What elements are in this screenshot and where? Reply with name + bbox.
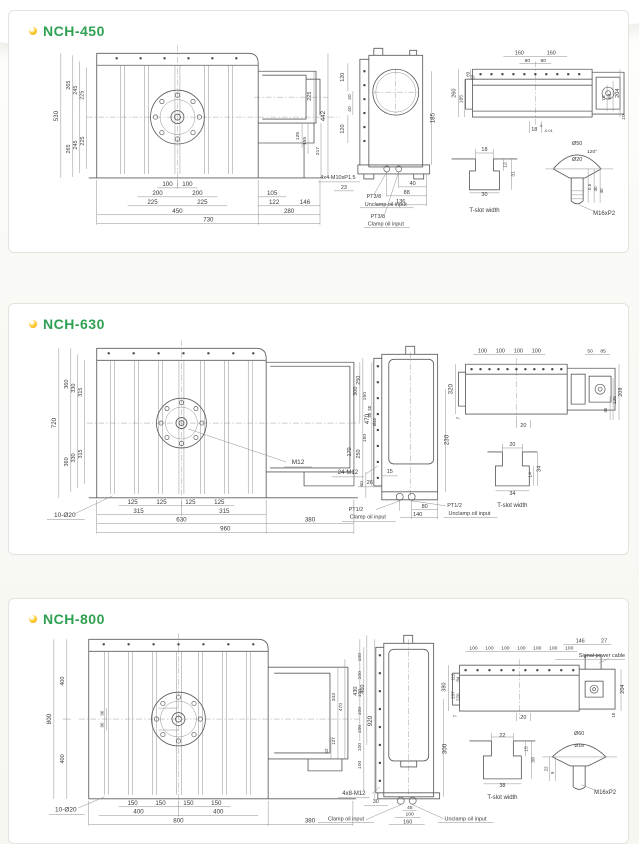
- dim-label: 57: [471, 74, 476, 79]
- dim-label: 380: [305, 517, 316, 524]
- dim-label: -0.01: [544, 128, 554, 133]
- dim-label: 320: [448, 383, 455, 394]
- dim-label: 800: [173, 818, 184, 825]
- dim-label: 400: [60, 677, 66, 686]
- dim-label: M16xP2: [593, 211, 616, 217]
- bullet-icon: [29, 320, 37, 328]
- dim-label: 442: [320, 110, 327, 121]
- technical-drawing-nch-800: 80040040090903434704304609201276210-Ø201…: [9, 629, 630, 843]
- dim-label: 80: [422, 504, 428, 510]
- dim-label: 100: [469, 645, 478, 651]
- dim-label: Clamp oil input: [328, 817, 365, 823]
- dim-label: 225: [80, 136, 86, 145]
- dim-label: 12: [502, 162, 508, 168]
- dim-label: 38: [530, 757, 536, 763]
- dim-label: 4x8-M12: [342, 791, 366, 797]
- dim-label: 265: [66, 144, 72, 153]
- dim-label: 204: [615, 89, 621, 98]
- dim-label: 100: [485, 645, 494, 651]
- dim-label: PT3/8: [367, 194, 382, 200]
- dim-label: 150: [362, 392, 368, 401]
- dim-label: 245: [73, 86, 79, 95]
- dim-label: 225: [307, 92, 313, 101]
- dim-label: T-slot width: [487, 795, 517, 801]
- dim-label: 0: [540, 123, 543, 128]
- dim-label: 45: [407, 805, 413, 811]
- dim-label: 9: [550, 771, 555, 774]
- dim-label: 100: [357, 671, 363, 680]
- dim-label: 100: [357, 707, 363, 716]
- dim-label: 30: [593, 186, 598, 191]
- dim-label: 10-Ø20: [54, 512, 76, 519]
- dim-label: 160: [547, 50, 556, 56]
- dim-label: 62: [324, 748, 329, 753]
- section-header: NCH-800: [29, 611, 105, 627]
- section-title: NCH-450: [43, 23, 105, 39]
- dim-label: 14: [527, 472, 533, 478]
- dim-label: 400: [133, 809, 144, 816]
- dim-label: 450: [172, 208, 183, 215]
- section-nch-800: NCH-800 80040040090903434704304609201276…: [8, 598, 629, 844]
- dim-label: 125: [214, 499, 225, 506]
- dim-label: 100: [496, 348, 505, 354]
- dim-label: 50: [367, 412, 372, 417]
- dim-label: 155: [302, 137, 308, 146]
- bullet-icon: [29, 27, 37, 35]
- dim-label: 18: [481, 147, 487, 153]
- dim-label: 245: [73, 140, 79, 149]
- dim-label: 360: [64, 457, 70, 466]
- section-header: NCH-450: [29, 23, 105, 39]
- dim-label: 100: [478, 348, 487, 354]
- dim-label: 730: [203, 217, 214, 224]
- dim-label: 100: [501, 645, 510, 651]
- dim-label: 185: [459, 95, 465, 104]
- dim-label: 38: [499, 783, 505, 789]
- dim-label: 217: [315, 147, 321, 156]
- dim-label: 10-Ø20: [55, 807, 77, 814]
- dim-label: 100: [533, 645, 542, 651]
- dim-label: 125: [127, 499, 138, 506]
- dim-label: Unclamp oil input: [449, 511, 491, 517]
- dim-label: 100: [517, 645, 526, 651]
- dim-label: 146: [576, 638, 585, 644]
- dim-label: 160: [403, 820, 412, 826]
- dim-label: 34: [509, 491, 515, 497]
- dim-label: Signal power cable: [579, 653, 625, 659]
- dim-label: 22: [543, 766, 548, 771]
- dim-label: 225: [80, 91, 86, 100]
- dim-label: 260: [452, 89, 458, 98]
- dim-label: 300: [353, 387, 359, 396]
- dim-label: 40: [599, 188, 604, 193]
- dim-label: T-slot width: [469, 208, 499, 214]
- dim-label: 100: [532, 348, 541, 354]
- dim-label: 230: [444, 434, 451, 445]
- dim-label: 60: [359, 481, 365, 487]
- dim-label: 100: [182, 181, 193, 188]
- dim-label: 360: [64, 380, 70, 389]
- dim-label: PT1/2: [349, 507, 364, 513]
- dim-label: 10: [621, 114, 627, 120]
- dim-label: 315: [78, 388, 84, 397]
- dim-label: 24-M12: [338, 470, 359, 476]
- dim-label: 90: [100, 710, 105, 715]
- dim-label: 80: [541, 58, 547, 64]
- dim-label: Ø20: [572, 157, 582, 163]
- dim-label: 4x4-M10xP1.5: [320, 175, 355, 181]
- dim-label: Unclamp oil input: [445, 817, 487, 823]
- dim-label: 380: [442, 683, 448, 692]
- dim-label: 90: [100, 722, 105, 727]
- dim-label: 100: [357, 725, 363, 734]
- section-nch-630: NCH-630 72036033031536033031530047017060…: [8, 303, 629, 555]
- dim-label: 120°: [587, 149, 597, 155]
- dim-label: 100: [357, 743, 363, 752]
- dim-label: Clamp oil input: [350, 515, 387, 521]
- dim-label: 40: [347, 106, 353, 112]
- dim-label: 209: [618, 388, 624, 397]
- dim-label: 300: [442, 743, 449, 754]
- dim-label: Ø50: [572, 141, 582, 147]
- dim-label: Ø18: [574, 743, 584, 749]
- dim-label: T-slot width: [497, 503, 527, 509]
- dim-label: 800: [46, 713, 53, 724]
- dim-label: 26: [367, 480, 373, 486]
- dim-label: 343: [331, 693, 337, 702]
- dim-label: Ø60: [574, 731, 584, 737]
- dim-label: 10: [611, 712, 616, 717]
- dim-label: 100: [565, 645, 574, 651]
- technical-drawing-nch-630: 72036033031536033031530047017060M1210-Ø2…: [9, 334, 630, 552]
- dim-label: 125: [612, 396, 618, 405]
- dim-label: 40: [347, 94, 353, 100]
- dim-label: 200: [192, 190, 203, 197]
- section-title: NCH-800: [43, 611, 105, 627]
- dim-label: Ø40: [372, 417, 377, 426]
- dim-label: 265: [66, 81, 72, 90]
- dim-label: 920: [367, 715, 374, 726]
- dim-label: 100: [406, 812, 415, 818]
- dim-label: 20: [520, 423, 526, 429]
- dim-label: 120: [340, 124, 346, 133]
- dim-label: 150: [155, 800, 166, 807]
- dim-label: 125: [156, 499, 167, 506]
- dim-label: 100: [357, 653, 363, 662]
- dim-label: PT3/8: [371, 214, 386, 220]
- dim-label: 20: [520, 715, 526, 721]
- dim-label: 50: [587, 348, 593, 354]
- dim-label: 150: [362, 434, 368, 443]
- dim-label: 315: [133, 508, 144, 515]
- dim-label: 185: [430, 112, 437, 123]
- dim-label: 330: [71, 384, 77, 393]
- dim-label: 45: [603, 407, 608, 412]
- dim-label: PT1/2: [447, 503, 462, 509]
- dim-label: 630: [176, 517, 187, 524]
- dim-label: 23: [341, 185, 347, 191]
- dim-label: 250: [356, 449, 362, 458]
- dim-label: 150: [183, 800, 194, 807]
- section-title: NCH-630: [43, 316, 105, 332]
- dim-label: 200: [152, 190, 163, 197]
- dim-label: 226: [456, 693, 461, 701]
- dim-label: 30: [481, 192, 487, 198]
- dim-label: 720: [51, 417, 58, 428]
- dim-label: 330: [71, 453, 77, 462]
- dim-label: 20: [509, 442, 515, 448]
- dim-label: 100: [162, 181, 173, 188]
- dim-label: 470: [338, 703, 344, 712]
- dim-label: 250: [356, 376, 362, 385]
- dim-label: 7: [453, 714, 458, 717]
- dim-label: M16xP2: [594, 790, 617, 796]
- dim-label: 88: [404, 190, 410, 196]
- dim-label: 127: [331, 737, 336, 745]
- dim-label: 100: [549, 645, 558, 651]
- dim-label: 50: [367, 405, 372, 410]
- dim-label: 7: [456, 416, 461, 419]
- section-nch-450: NCH-450 53026524522526524522522544212515…: [8, 10, 629, 253]
- dim-label: 30: [373, 799, 379, 805]
- dim-label: 146: [300, 199, 311, 206]
- dim-label: 34: [536, 466, 542, 472]
- dim-label: 84: [607, 93, 613, 99]
- dim-label: 84: [456, 676, 461, 681]
- bullet-icon: [29, 615, 37, 623]
- dim-label: 400: [213, 809, 224, 816]
- dim-label: 160: [515, 50, 524, 56]
- dim-label: 125: [295, 132, 301, 141]
- dim-label: 18: [531, 127, 537, 133]
- dim-label: 125: [185, 499, 196, 506]
- dim-label: 380: [305, 818, 316, 825]
- dim-label: 100: [357, 761, 363, 770]
- dim-label: 170: [347, 447, 353, 456]
- dim-label: 22: [499, 733, 505, 739]
- dim-label: 204: [620, 685, 626, 694]
- dim-label: 315: [219, 508, 230, 515]
- dim-label: 27: [601, 638, 607, 644]
- dim-label: 280: [284, 208, 295, 215]
- dim-label: Unclamp oil input: [365, 202, 407, 208]
- dim-label: Clamp oil input: [368, 222, 405, 228]
- dim-label: 100: [514, 348, 523, 354]
- dim-label: 100: [357, 689, 363, 698]
- dim-label: 960: [220, 526, 231, 533]
- dim-label: 150: [211, 800, 222, 807]
- dim-label: 15: [523, 746, 529, 752]
- dim-label: 0.5: [587, 183, 592, 190]
- dim-label: 40: [410, 181, 416, 187]
- dim-label: 225: [197, 199, 208, 206]
- dim-label: 31: [510, 171, 516, 177]
- dim-label: 530: [53, 110, 60, 121]
- dim-label: 120: [340, 73, 346, 82]
- section-header: NCH-630: [29, 316, 105, 332]
- dim-label: 150: [127, 800, 138, 807]
- dim-label: 122: [269, 199, 280, 206]
- dim-label: 225: [147, 199, 158, 206]
- dim-label: 315: [78, 449, 84, 458]
- dim-label: M12: [292, 459, 305, 466]
- dim-label: 80: [525, 58, 531, 64]
- technical-drawing-nch-450: 5302652452252652452252254421251552171001…: [9, 41, 630, 252]
- dim-label: 15: [387, 469, 393, 475]
- dim-label: 105: [267, 190, 278, 197]
- dim-label: 140: [413, 512, 422, 518]
- dim-label: 400: [60, 754, 66, 763]
- dim-label: 85: [600, 348, 606, 354]
